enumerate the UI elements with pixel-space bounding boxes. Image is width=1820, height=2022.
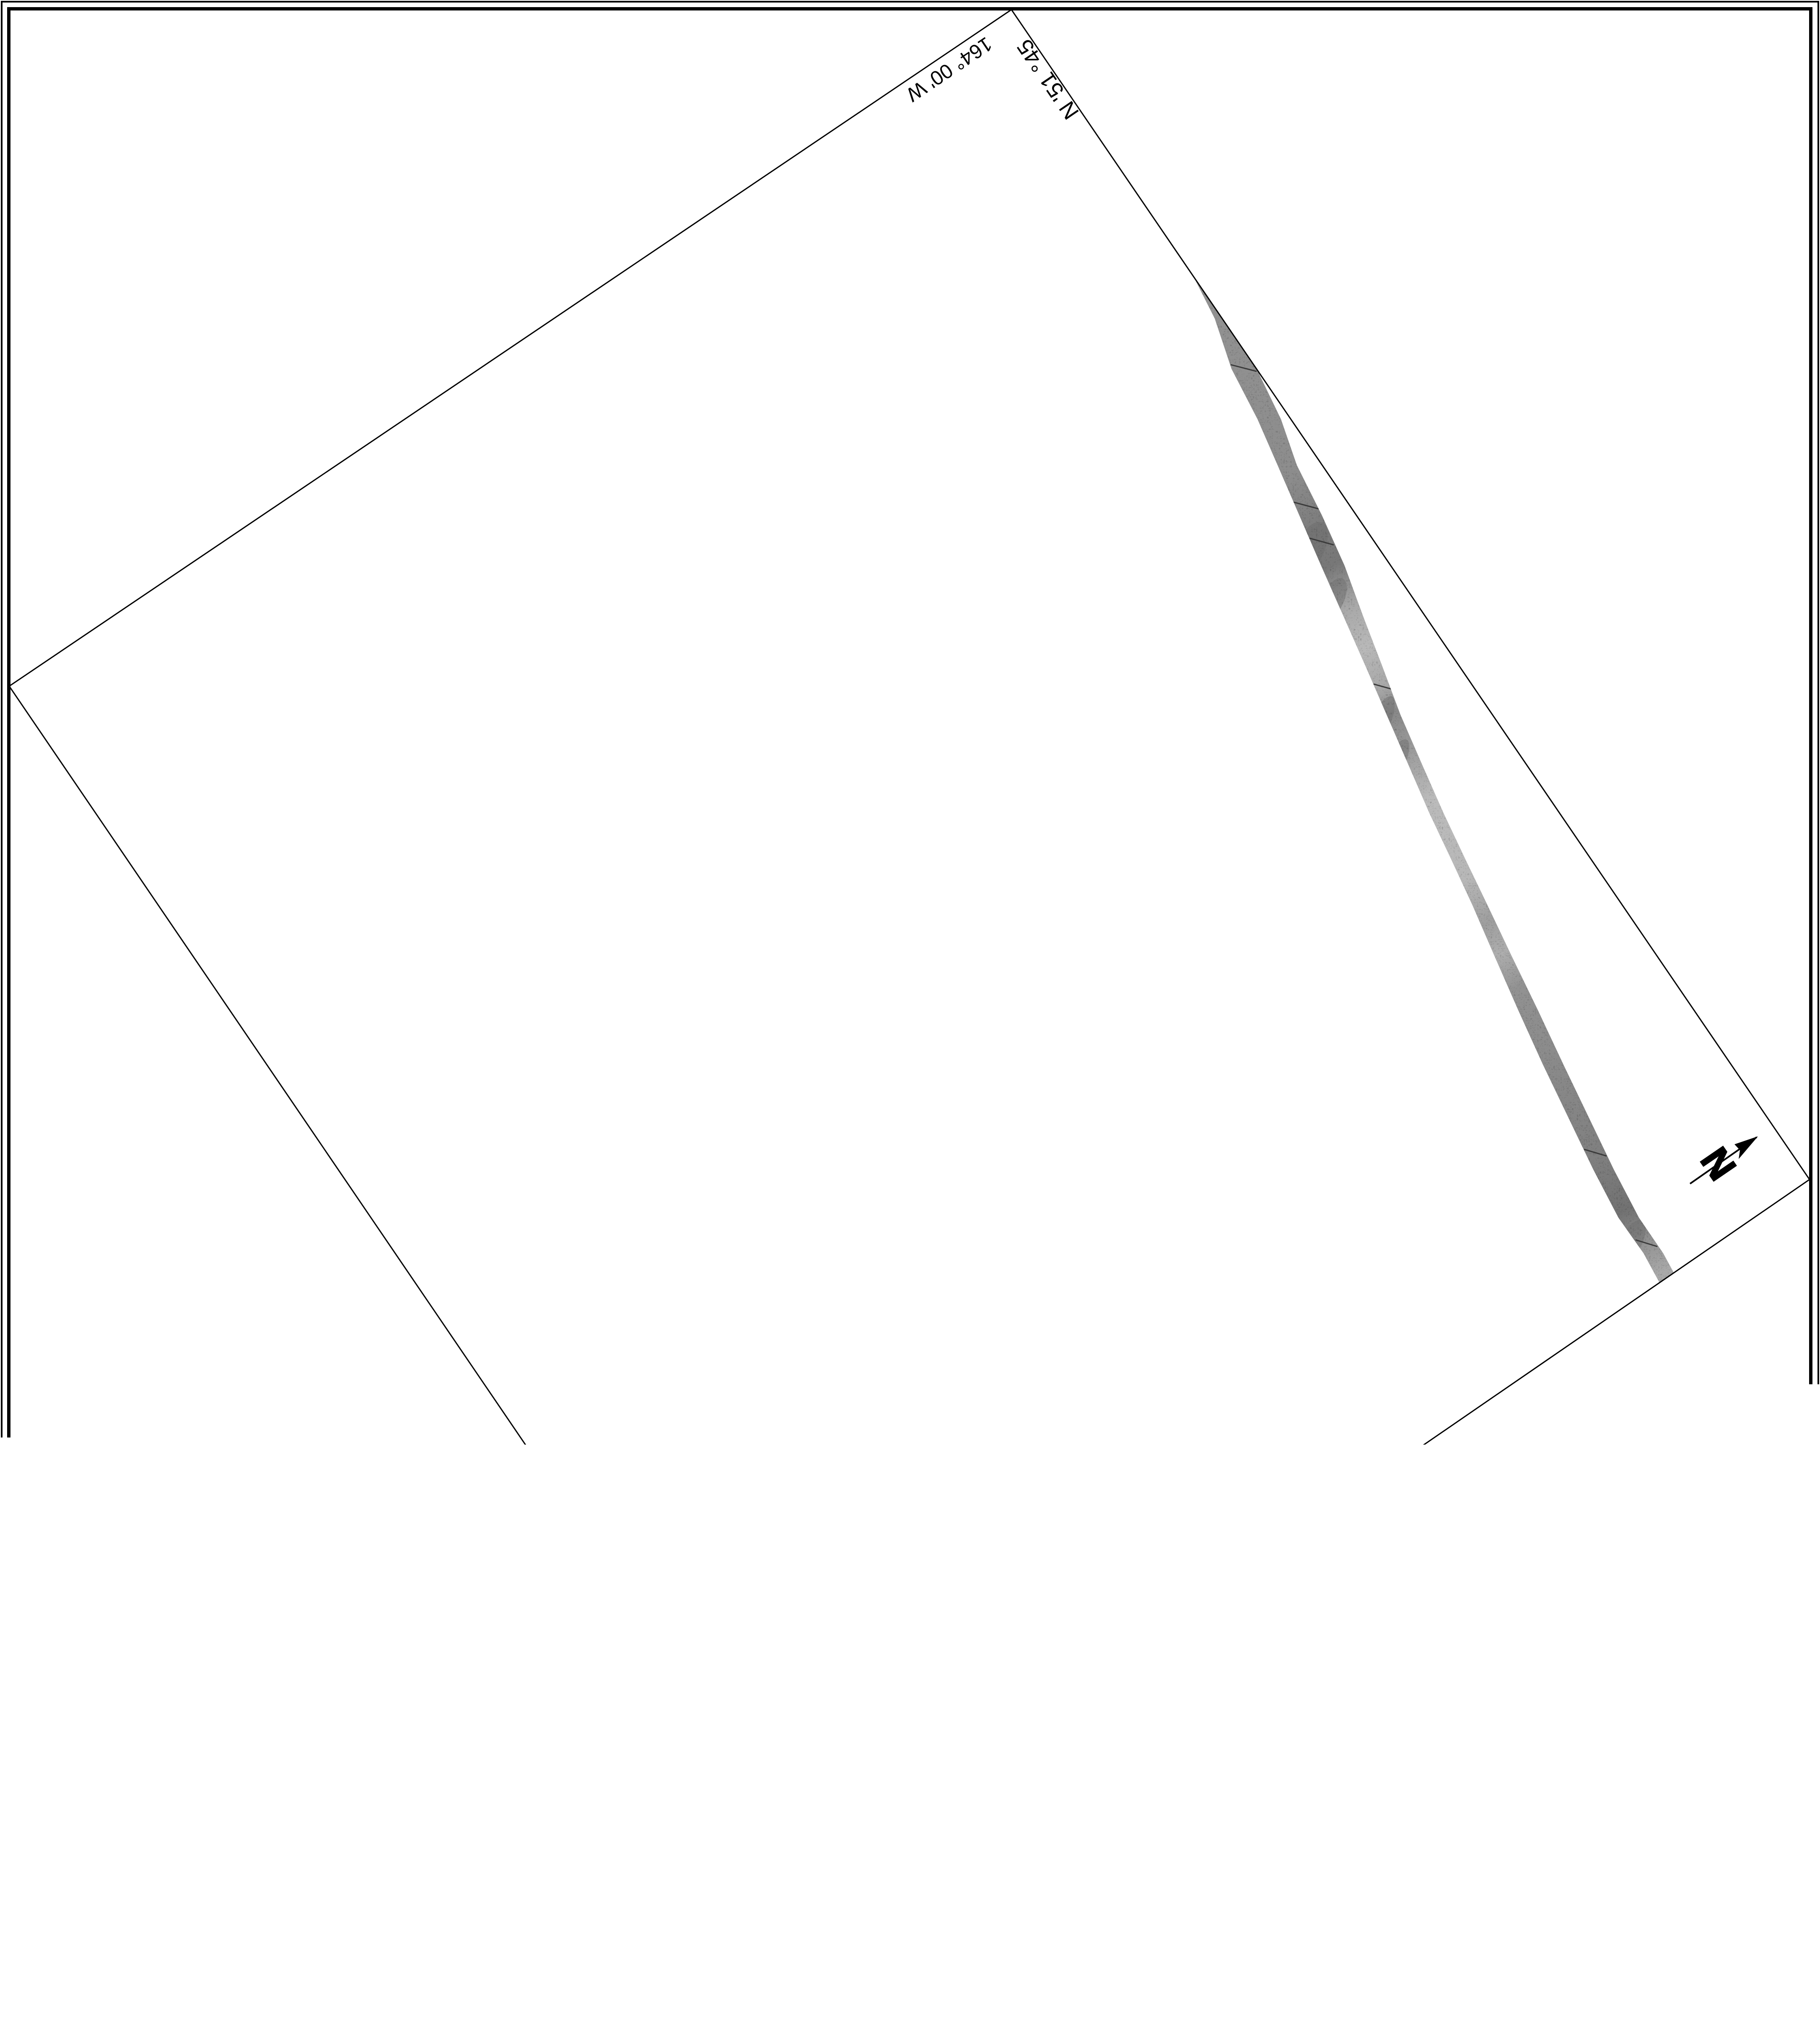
svg-text:University of New Brunswick: University of New Brunswick <box>60 1953 209 1966</box>
svg-text:20 km: 20 km <box>1004 1908 1063 1933</box>
svg-text:Ocean Mapping Group: Ocean Mapping Group <box>12 1885 249 1915</box>
svg-text:-40 dB: -40 dB <box>357 1968 421 1992</box>
svg-text:CANADA: CANADA <box>109 1965 160 1978</box>
svg-text:10 NM: 10 NM <box>1001 1962 1065 1987</box>
svg-text:OMG/ArcticNet Basemap: 54_15_N: OMG/ArcticNet Basemap: 54_15_N_164_00_W … <box>505 1993 1341 2017</box>
svg-text:ArcticNet: ArcticNet <box>1628 1903 1754 1937</box>
svg-text:-5 dB: -5 dB <box>357 1879 409 1903</box>
